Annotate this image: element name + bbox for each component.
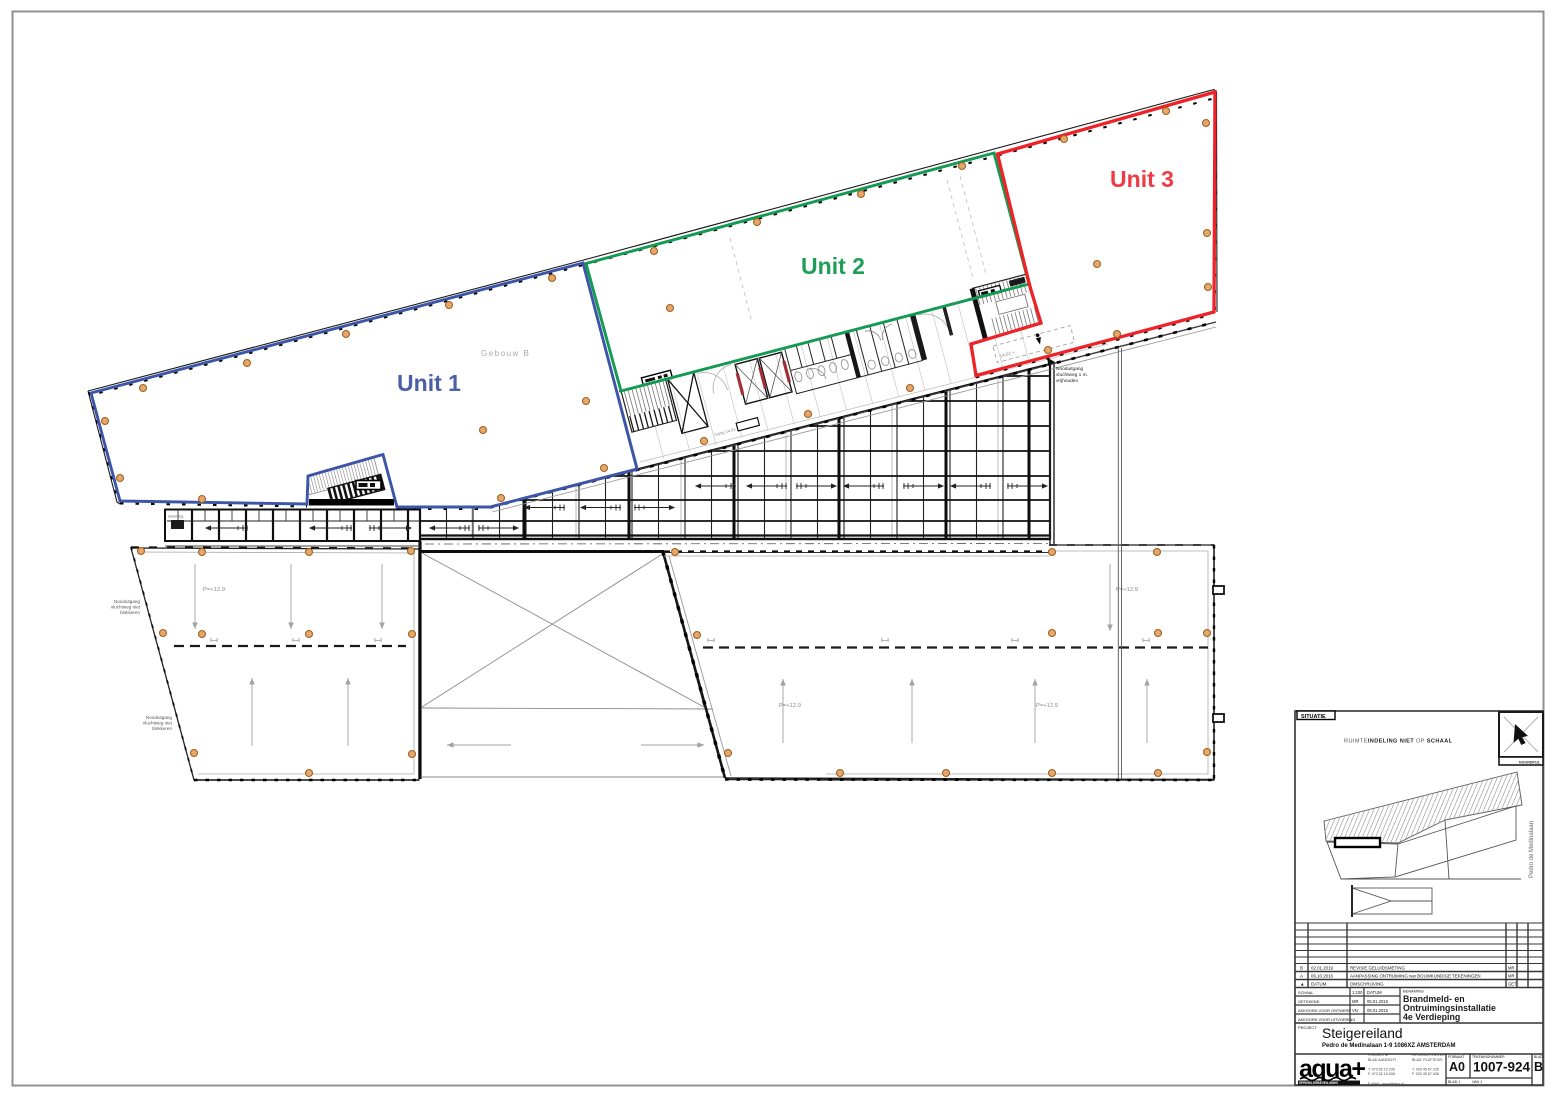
svg-text:AANPASSING ONTRUIMING nav BOUW: AANPASSING ONTRUIMING nav BOUWKUNDIGE TE… xyxy=(1350,974,1481,979)
svg-text:▲: ▲ xyxy=(1300,982,1305,987)
svg-text:Steigereiland: Steigereiland xyxy=(1322,1026,1403,1041)
svg-text:1:100: 1:100 xyxy=(1352,990,1363,995)
svg-text:Unit 1: Unit 1 xyxy=(397,370,461,396)
svg-text:PROJECTIE: PROJECTIE xyxy=(1368,1053,1389,1057)
svg-text:FORMAAT: FORMAAT xyxy=(1448,1055,1464,1059)
svg-text:AKKOORD VOOR ONTWERP: AKKOORD VOOR ONTWERP xyxy=(1298,1008,1351,1013)
svg-text:l—l: l—l xyxy=(374,638,381,644)
svg-text:BLAD AANZICHT: BLAD AANZICHT xyxy=(1368,1058,1397,1062)
svg-text:BENAMING: BENAMING xyxy=(1403,989,1424,994)
svg-text:1007-924: 1007-924 xyxy=(1473,1060,1531,1075)
svg-text:Nooduitgang: Nooduitgang xyxy=(114,599,140,604)
svg-text:T. 073 52 19 235: T. 073 52 19 235 xyxy=(1368,1067,1395,1071)
svg-text:E-MAIL: aqua@plus.nl: E-MAIL: aqua@plus.nl xyxy=(1368,1082,1404,1086)
svg-text:MR: MR xyxy=(1508,966,1515,971)
svg-text:l—l: l—l xyxy=(881,638,888,644)
svg-text:instorting: instorting xyxy=(168,515,183,519)
svg-text:l—l: l—l xyxy=(1011,638,1018,644)
svg-text:F. 073 52 19 638: F. 073 52 19 638 xyxy=(1368,1072,1395,1076)
svg-text:T. 020 45 67 235: T. 020 45 67 235 xyxy=(1412,1067,1439,1071)
svg-text:Unit 3: Unit 3 xyxy=(1110,166,1174,192)
svg-text:SPRINKLERBEVEILIGING: SPRINKLERBEVEILIGING xyxy=(1299,1081,1338,1085)
svg-text:02.01.2019: 02.01.2019 xyxy=(1311,966,1334,971)
svg-text:4e Verdieping: 4e Verdieping xyxy=(1403,1012,1460,1022)
svg-text:GET.: GET. xyxy=(1508,982,1517,987)
svg-text:Nooduitgang: Nooduitgang xyxy=(1056,366,1084,372)
svg-text:l—l: l—l xyxy=(210,638,217,644)
svg-text:vluchtweg 1 m.: vluchtweg 1 m. xyxy=(1056,372,1088,378)
svg-text:Pedro de Medinalaan 1-9 1086XZ: Pedro de Medinalaan 1-9 1086XZ AMSTERDAM xyxy=(1322,1043,1455,1049)
svg-text:MR: MR xyxy=(1508,974,1515,979)
svg-text:P=+12.9: P=+12.9 xyxy=(203,587,225,593)
svg-text:F. 020 45 67 638: F. 020 45 67 638 xyxy=(1412,1072,1439,1076)
svg-text:Unit 2: Unit 2 xyxy=(801,253,865,279)
svg-text:A0: A0 xyxy=(1449,1060,1465,1074)
svg-text:BLAD: PLATTEGR.: BLAD: PLATTEGR. xyxy=(1412,1058,1443,1062)
svg-text:OPDRACHTGEVER: OPDRACHTGEVER xyxy=(1412,1053,1445,1057)
svg-text:Nooduitgang: Nooduitgang xyxy=(146,715,172,720)
svg-text:B: B xyxy=(1534,1060,1543,1074)
svg-text:blokkeren: blokkeren xyxy=(152,726,172,731)
svg-text:05.01.2015: 05.01.2015 xyxy=(1367,999,1389,1004)
svg-text:GETEKEND: GETEKEND xyxy=(1298,999,1320,1004)
svg-text:BLAD 1: BLAD 1 xyxy=(1448,1080,1460,1084)
svg-text:OMSCHRIJVING: OMSCHRIJVING xyxy=(1350,982,1384,987)
svg-text:VAN 1: VAN 1 xyxy=(1472,1080,1482,1084)
svg-text:vluchtweg niet: vluchtweg niet xyxy=(111,605,141,610)
svg-text:REVISIE GELUIDSMETING: REVISIE GELUIDSMETING xyxy=(1350,966,1405,971)
svg-text:PROJECT: PROJECT xyxy=(1298,1025,1317,1030)
svg-text:vluchtweg niet: vluchtweg niet xyxy=(143,721,173,726)
svg-text:Pedro de Medinalaan: Pedro de Medinalaan xyxy=(1529,821,1535,878)
svg-text:NOORDPIJL: NOORDPIJL xyxy=(1519,761,1541,765)
svg-text:l—l: l—l xyxy=(292,638,299,644)
svg-text:P=+12.9: P=+12.9 xyxy=(1116,587,1138,593)
svg-text:05.01.2015: 05.01.2015 xyxy=(1367,1008,1389,1013)
svg-text:l—l: l—l xyxy=(707,638,714,644)
svg-text:B: B xyxy=(1300,966,1303,971)
svg-text:SITUATIE: SITUATIE xyxy=(1301,714,1326,720)
svg-text:MR: MR xyxy=(1352,999,1359,1004)
svg-text:TEKENINGNUMMER: TEKENINGNUMMER xyxy=(1472,1055,1505,1059)
svg-text:Gebouw B: Gebouw B xyxy=(481,349,530,358)
svg-text:06.10.2016: 06.10.2016 xyxy=(1311,974,1334,979)
svg-text:l—l: l—l xyxy=(1142,638,1149,644)
svg-text:DATUM: DATUM xyxy=(1311,982,1327,987)
svg-text:BLAD: BLAD xyxy=(1534,1055,1543,1059)
svg-text:vrijhouden: vrijhouden xyxy=(1056,378,1078,384)
svg-text:DATUM: DATUM xyxy=(1367,990,1382,995)
svg-text:P=+12.9: P=+12.9 xyxy=(779,703,801,709)
svg-text:VN: VN xyxy=(1352,1008,1358,1013)
svg-text:blokkeren: blokkeren xyxy=(120,610,140,615)
svg-text:AKKOORD VOOR UITVOERING: AKKOORD VOOR UITVOERING xyxy=(1298,1017,1355,1022)
svg-text:SCHAAL: SCHAAL xyxy=(1298,990,1314,995)
svg-text:P=+12.9: P=+12.9 xyxy=(1036,703,1058,709)
svg-text:RUIMTEINDELING NIET OP SCHAAL: RUIMTEINDELING NIET OP SCHAAL xyxy=(1344,739,1453,745)
